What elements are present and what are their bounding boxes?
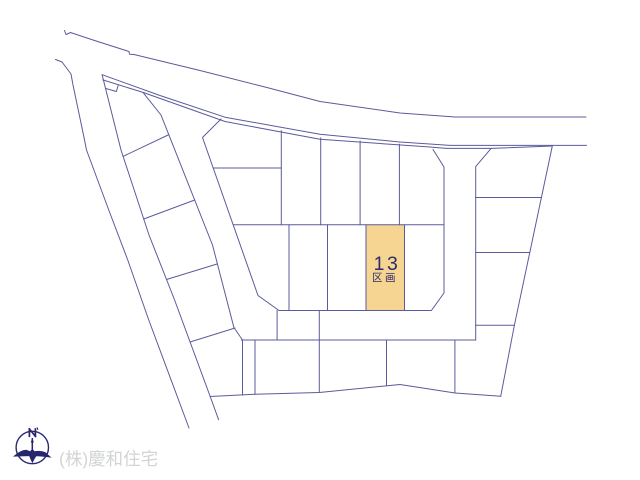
- svg-text:(株)慶和住宅: (株)慶和住宅: [59, 449, 158, 469]
- svg-text:区画: 区画: [372, 272, 398, 284]
